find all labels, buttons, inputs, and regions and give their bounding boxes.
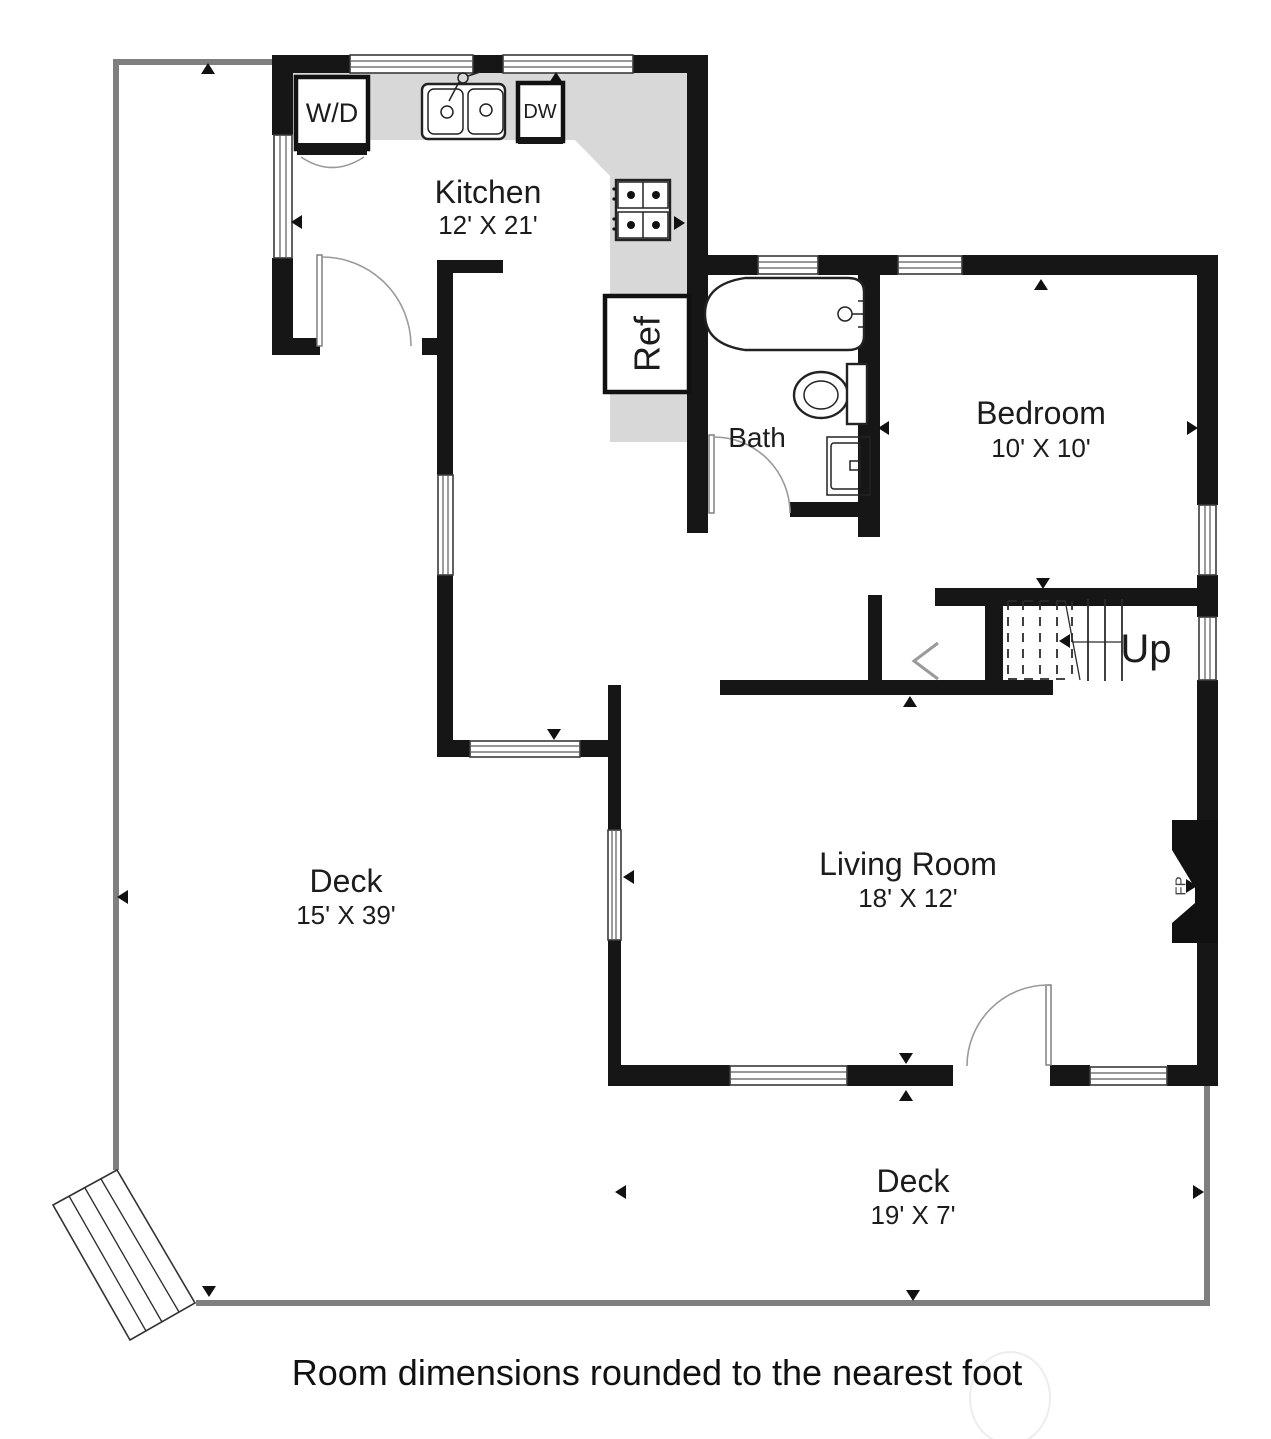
- direction-arrow-icon: [906, 1290, 920, 1301]
- window: [1199, 505, 1216, 575]
- washer-dryer-label: W/D: [306, 98, 358, 128]
- window: [608, 830, 621, 940]
- window: [503, 55, 633, 73]
- deck-bottom-dims: 19' X 7': [870, 1200, 955, 1230]
- bedroom-label: Bedroom: [976, 395, 1106, 431]
- direction-arrow-icon: [615, 1185, 626, 1199]
- floor-plan-drawing: Kitchen 12' X 21' Bath Bedroom 10' X 10'…: [0, 0, 1271, 1439]
- window: [274, 135, 292, 258]
- direction-arrow-icon: [899, 1053, 913, 1064]
- stairs-up-label: Up: [1120, 627, 1171, 671]
- living-room-deck-door: [967, 985, 1051, 1066]
- window: [1090, 1067, 1167, 1085]
- kitchen-label: Kitchen: [435, 174, 542, 210]
- window: [470, 741, 580, 757]
- direction-arrow-icon: [1036, 578, 1050, 589]
- direction-arrow-icon: [1193, 1185, 1204, 1199]
- deck-bottom-label: Deck: [877, 1163, 951, 1199]
- direction-arrow-icon: [547, 729, 561, 740]
- direction-arrow-icon: [1059, 634, 1070, 648]
- living-room-dims: 18' X 12': [858, 883, 958, 913]
- floor-plan-page: Kitchen 12' X 21' Bath Bedroom 10' X 10'…: [0, 0, 1271, 1439]
- direction-arrow-icon: [903, 696, 917, 707]
- bedroom-door-mark: [914, 643, 938, 679]
- kitchen-dims: 12' X 21': [438, 210, 538, 240]
- bathtub: [705, 278, 864, 350]
- toilet: [794, 364, 867, 424]
- direction-arrow-icon: [899, 1090, 913, 1101]
- bedroom-dims: 10' X 10': [991, 433, 1091, 463]
- bath-label: Bath: [728, 422, 786, 453]
- window: [438, 475, 453, 575]
- dishwasher-label: DW: [523, 101, 556, 123]
- deck-left-dims: 15' X 39': [296, 900, 396, 930]
- kitchen-deck-door: [317, 255, 411, 346]
- walls: [272, 55, 1218, 1086]
- direction-arrow-icon: [1034, 279, 1048, 290]
- living-room-label: Living Room: [819, 846, 997, 882]
- refrigerator-label: Ref: [627, 315, 668, 372]
- windows: [274, 55, 1216, 1085]
- fireplace-label: FP: [1173, 876, 1190, 895]
- caption: Room dimensions rounded to the nearest f…: [292, 1352, 1022, 1393]
- window: [350, 55, 473, 73]
- stove: [612, 180, 670, 240]
- direction-arrow-icon: [1187, 421, 1198, 435]
- direction-arrow-icon: [623, 870, 634, 884]
- window: [758, 256, 818, 274]
- deck-steps: [53, 1170, 195, 1340]
- window: [730, 1066, 847, 1085]
- window: [898, 256, 962, 274]
- deck-left-label: Deck: [310, 863, 384, 899]
- window: [1199, 617, 1216, 680]
- direction-arrow-icon: [202, 1286, 216, 1297]
